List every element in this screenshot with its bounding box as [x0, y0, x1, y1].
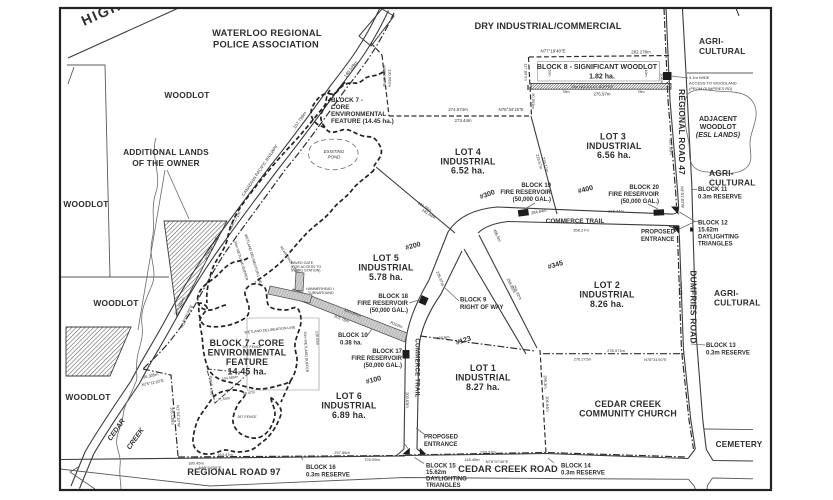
svg-text:BLOCK 13: BLOCK 13	[706, 343, 736, 349]
svg-text:AGRI-: AGRI-	[714, 288, 739, 298]
svg-text:0.38 ha.: 0.38 ha.	[340, 341, 362, 347]
svg-text:ACCESS TO WOODLAND: ACCESS TO WOODLAND	[689, 81, 737, 86]
svg-text:N76°34'15"E: N76°34'15"E	[499, 107, 524, 112]
svg-text:367 FENCE: 367 FENCE	[237, 415, 257, 419]
svg-text:WOODLOT: WOODLOT	[164, 90, 210, 100]
svg-text:ENVIRONMENTAL: ENVIRONMENTAL	[331, 111, 386, 118]
svg-text:138.93m: 138.93m	[315, 331, 320, 345]
svg-text:(50,000 GAL.): (50,000 GAL.)	[364, 363, 402, 369]
svg-text:INDUSTRIAL: INDUSTRIAL	[321, 401, 377, 411]
svg-text:N78°07'40"E: N78°07'40"E	[486, 459, 509, 464]
svg-text:BLOCK 17: BLOCK 17	[372, 349, 402, 355]
svg-text:6.52 ha.: 6.52 ha.	[451, 166, 485, 176]
svg-text:5.78 ha.: 5.78 ha.	[369, 272, 403, 282]
svg-text:BLOCK 8 - SIGNIFICANT WOODLOT: BLOCK 8 - SIGNIFICANT WOODLOT	[537, 64, 658, 71]
svg-text:WOODLOT: WOODLOT	[93, 298, 139, 308]
svg-text:233.23m: 233.23m	[480, 450, 496, 455]
svg-text:DUMFRIES ROAD: DUMFRIES ROAD	[689, 270, 699, 343]
svg-text:1.82 ha.: 1.82 ha.	[589, 74, 615, 81]
svg-text:WATERLOO REGIONAL: WATERLOO REGIONAL	[212, 28, 322, 38]
svg-text:6.89 ha.: 6.89 ha.	[332, 410, 366, 420]
svg-text:WOODLOT: WOODLOT	[65, 392, 111, 402]
svg-text:OF THE OWNER: OF THE OWNER	[132, 158, 200, 168]
svg-text:FIRE RESERVOIR: FIRE RESERVOIR	[500, 190, 551, 196]
svg-text:130.062m: 130.062m	[388, 69, 393, 87]
svg-text:117.897m: 117.897m	[524, 63, 529, 81]
svg-text:CEDAR CREEK ROAD: CEDAR CREEK ROAD	[458, 464, 558, 474]
svg-text:DAYLIGHTING: DAYLIGHTING	[426, 477, 467, 483]
svg-text:0.3m RESERVE: 0.3m RESERVE	[561, 471, 605, 477]
svg-text:BLOCK 16: BLOCK 16	[306, 465, 336, 471]
svg-text:FEATURE: FEATURE	[226, 357, 268, 367]
svg-text:POND: POND	[328, 155, 342, 160]
svg-text:237.66m: 237.66m	[668, 139, 674, 155]
svg-text:0.3m RESERVE: 0.3m RESERVE	[306, 473, 350, 479]
svg-text:FIRE RESERVOIR: FIRE RESERVOIR	[351, 356, 402, 362]
svg-text:CULTURAL: CULTURAL	[714, 298, 761, 308]
svg-text:BLOCK 18: BLOCK 18	[378, 294, 408, 300]
svg-text:278.971m: 278.971m	[607, 348, 625, 353]
svg-text:INDUSTRIAL: INDUSTRIAL	[455, 373, 511, 383]
svg-text:LOT 1: LOT 1	[470, 363, 496, 373]
svg-text:FEATURE (14.45 ha.): FEATURE (14.45 ha.)	[331, 118, 394, 125]
svg-text:BLOCK 14: BLOCK 14	[561, 464, 591, 470]
svg-text:AGRI-: AGRI-	[699, 36, 724, 46]
svg-text:REGIONAL ROAD 47: REGIONAL ROAD 47	[677, 89, 687, 175]
svg-text:295.3m: 295.3m	[543, 375, 548, 389]
svg-text:INDUSTRIAL: INDUSTRIAL	[579, 290, 635, 300]
svg-text:N78°31'50"E: N78°31'50"E	[644, 357, 667, 362]
svg-text:276.97m: 276.97m	[593, 92, 610, 97]
svg-text:BLOCK 11: BLOCK 11	[698, 187, 728, 193]
svg-text:15.62m: 15.62m	[698, 228, 718, 234]
svg-text:DRY INDUSTRIAL/COMMERCIAL: DRY INDUSTRIAL/COMMERCIAL	[474, 21, 621, 31]
svg-text:WOODLOT: WOODLOT	[700, 124, 737, 131]
svg-text:LOT 5: LOT 5	[373, 253, 399, 263]
svg-text:(50,000 GAL.): (50,000 GAL.)	[513, 197, 551, 203]
svg-text:10m: 10m	[548, 70, 552, 77]
svg-text:PROPOSED: PROPOSED	[641, 230, 676, 236]
svg-text:237.56m: 237.56m	[334, 450, 350, 455]
svg-text:274.674m: 274.674m	[448, 107, 468, 112]
svg-text:BLOCK 7 -: BLOCK 7 -	[331, 97, 363, 104]
svg-text:206.64m: 206.64m	[545, 396, 551, 412]
svg-text:PROPOSED: PROPOSED	[424, 435, 459, 441]
svg-text:TURNAROUND: TURNAROUND	[308, 291, 334, 295]
svg-text:(50,000 GAL.): (50,000 GAL.)	[370, 308, 408, 314]
svg-text:ENTRANCE: ENTRANCE	[424, 442, 457, 448]
svg-text:10m: 10m	[644, 70, 648, 77]
svg-text:104m: 104m	[660, 73, 665, 84]
svg-text:6.56 ha.: 6.56 ha.	[597, 150, 631, 160]
svg-text:0.3m RESERVE: 0.3m RESERVE	[706, 351, 750, 357]
svg-text:8.26 ha.: 8.26 ha.	[590, 299, 624, 309]
svg-text:POLICE ASSOCIATION: POLICE ASSOCIATION	[213, 40, 319, 50]
svg-text:(ESL LANDS): (ESL LANDS)	[696, 132, 741, 139]
svg-text:CULTURAL: CULTURAL	[699, 46, 746, 56]
svg-text:8.27 ha.: 8.27 ha.	[466, 382, 500, 392]
svg-text:BLOCK 20: BLOCK 20	[629, 185, 659, 191]
svg-text:118.45m: 118.45m	[464, 457, 480, 462]
svg-text:CULTURAL: CULTURAL	[709, 178, 756, 188]
svg-text:248.89m: 248.89m	[678, 282, 684, 298]
svg-text:(50,000 GAL.): (50,000 GAL.)	[621, 199, 659, 205]
svg-text:BLOCK 10: BLOCK 10	[338, 333, 368, 339]
svg-text:15m WOODLOT BUFFER: 15m WOODLOT BUFFER	[571, 85, 613, 89]
svg-text:AGRI-: AGRI-	[709, 168, 734, 178]
svg-text:N9°01'40"W: N9°01'40"W	[680, 186, 686, 208]
svg-text:0.3m RESERVE: 0.3m RESERVE	[698, 195, 742, 201]
svg-text:N8°56'40"W: N8°56'40"W	[382, 65, 387, 87]
svg-text:RIGHT OF WAY: RIGHT OF WAY	[460, 305, 503, 311]
svg-text:282.278m: 282.278m	[631, 50, 651, 55]
svg-text:273.44m: 273.44m	[454, 118, 471, 123]
svg-text:N77°19'40"E: N77°19'40"E	[541, 49, 566, 54]
svg-text:BLOCK 15: BLOCK 15	[426, 464, 456, 470]
svg-text:COMMUNITY CHURCH: COMMUNITY CHURCH	[579, 409, 677, 419]
svg-text:LOT 6: LOT 6	[336, 391, 362, 401]
svg-text:ENTRANCE: ENTRANCE	[641, 237, 674, 243]
svg-text:(FROM DUMFRIES RD): (FROM DUMFRIES RD)	[689, 86, 733, 91]
svg-text:LOT 2: LOT 2	[594, 280, 620, 290]
svg-text:50.593m: 50.593m	[531, 93, 536, 109]
svg-text:ADJACENT: ADJACENT	[699, 116, 738, 123]
svg-text:N85°04'55"E: N85°04'55"E	[199, 465, 222, 470]
svg-text:165.138m: 165.138m	[170, 407, 176, 426]
svg-text:78m: 78m	[638, 90, 645, 94]
svg-text:276.272m: 276.272m	[574, 357, 592, 362]
svg-text:ENVIRONMENTAL: ENVIRONMENTAL	[208, 348, 287, 358]
svg-text:BLOCK 19: BLOCK 19	[521, 183, 551, 189]
svg-text:725.09m: 725.09m	[364, 457, 380, 462]
svg-text:DAYLIGHTING: DAYLIGHTING	[698, 235, 739, 241]
svg-text:TRIANGLES: TRIANGLES	[426, 483, 461, 489]
svg-text:218.44m: 218.44m	[608, 209, 624, 214]
svg-text:ADDITIONAL LANDS: ADDITIONAL LANDS	[123, 147, 209, 157]
svg-text:WOODLOT: WOODLOT	[63, 199, 109, 209]
svg-text:203.63m: 203.63m	[405, 392, 411, 408]
svg-text:9.1m WIDE: 9.1m WIDE	[689, 75, 710, 80]
svg-text:FIRE RESERVOIR: FIRE RESERVOIR	[608, 192, 659, 198]
svg-text:78m: 78m	[563, 90, 570, 94]
svg-text:367 FENCE: 367 FENCE	[242, 345, 262, 349]
svg-text:BLOCK 12: BLOCK 12	[698, 221, 728, 227]
svg-text:15.62m: 15.62m	[426, 470, 446, 476]
svg-text:CEDAR CREEK: CEDAR CREEK	[595, 399, 662, 409]
svg-text:358.27m: 358.27m	[573, 228, 589, 233]
svg-text:COMMERCE TRAIL: COMMERCE TRAIL	[546, 218, 605, 225]
svg-text:CORE: CORE	[331, 104, 350, 111]
svg-text:EXISTING: EXISTING	[324, 149, 345, 154]
svg-text:COMMERCE TRAIL: COMMERCE TRAIL	[414, 338, 420, 397]
svg-text:TRIANGLES: TRIANGLES	[698, 242, 733, 248]
svg-text:INDUSTRIAL: INDUSTRIAL	[358, 263, 414, 273]
svg-text:CEMETERY: CEMETERY	[716, 440, 763, 449]
svg-text:FIRE RESERVOIR: FIRE RESERVOIR	[357, 301, 408, 307]
svg-text:BLOCK 9: BLOCK 9	[460, 298, 487, 304]
svg-text:163.47m: 163.47m	[217, 452, 233, 457]
